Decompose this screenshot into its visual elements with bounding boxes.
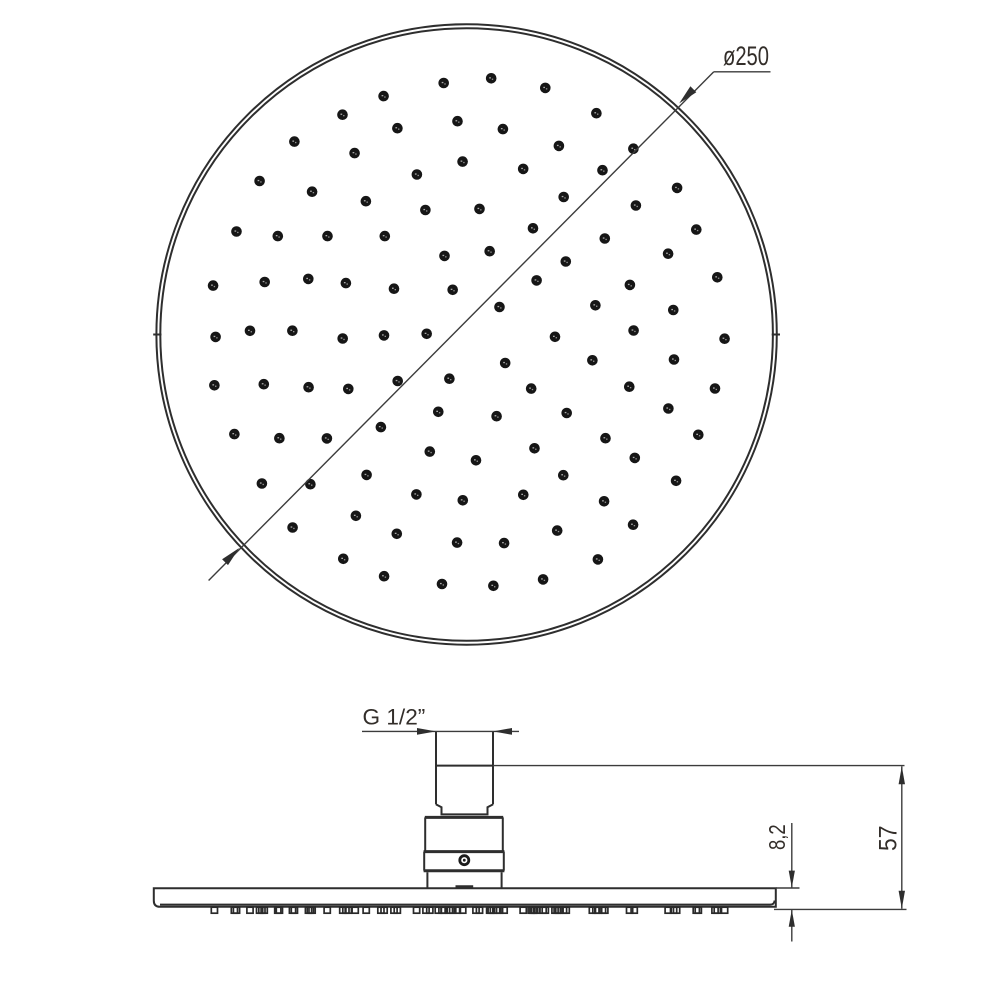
svg-text:ø250: ø250 xyxy=(723,40,769,71)
svg-text:G 1/2”: G 1/2” xyxy=(363,705,426,730)
svg-text:57: 57 xyxy=(875,826,903,852)
svg-text:8,2: 8,2 xyxy=(764,824,790,850)
